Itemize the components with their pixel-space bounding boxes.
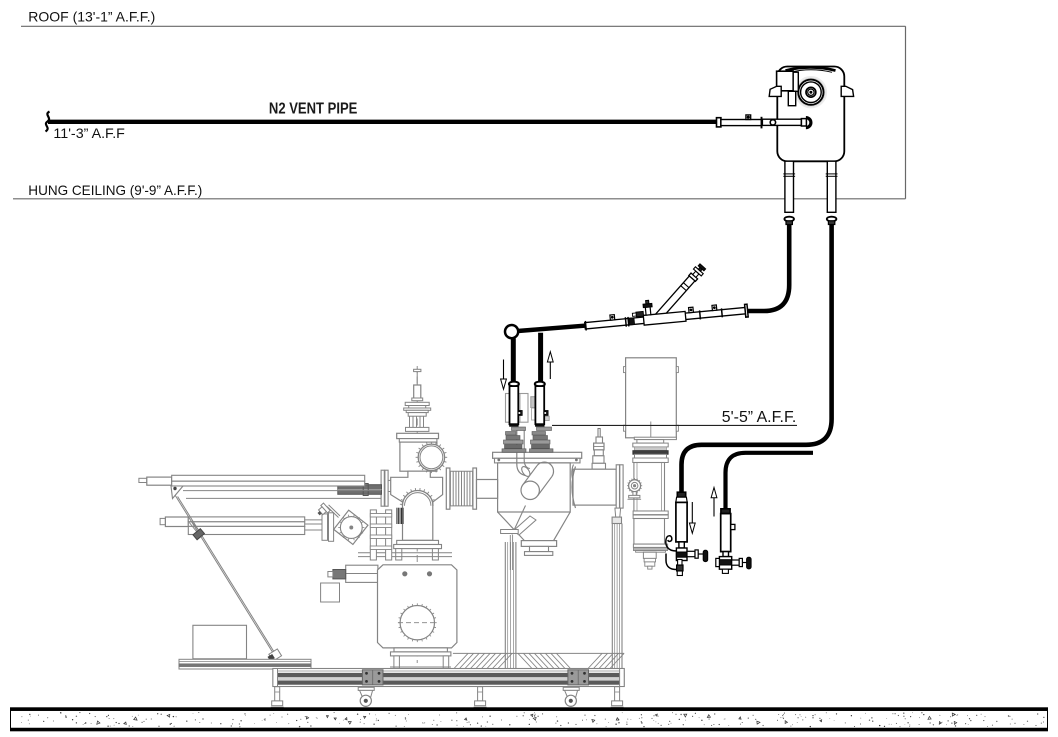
svg-text:HUNG CEILING (9'-9” A.F.F.): HUNG CEILING (9'-9” A.F.F.): [28, 182, 202, 198]
svg-text:ROOF (13'-1” A.F.F.): ROOF (13'-1” A.F.F.): [28, 9, 155, 25]
svg-text:N2 VENT PIPE: N2 VENT PIPE: [269, 101, 358, 118]
svg-text:5'-5” A.F.F.: 5'-5” A.F.F.: [722, 409, 797, 426]
svg-text:11'-3” A.F.F: 11'-3” A.F.F: [53, 126, 125, 141]
